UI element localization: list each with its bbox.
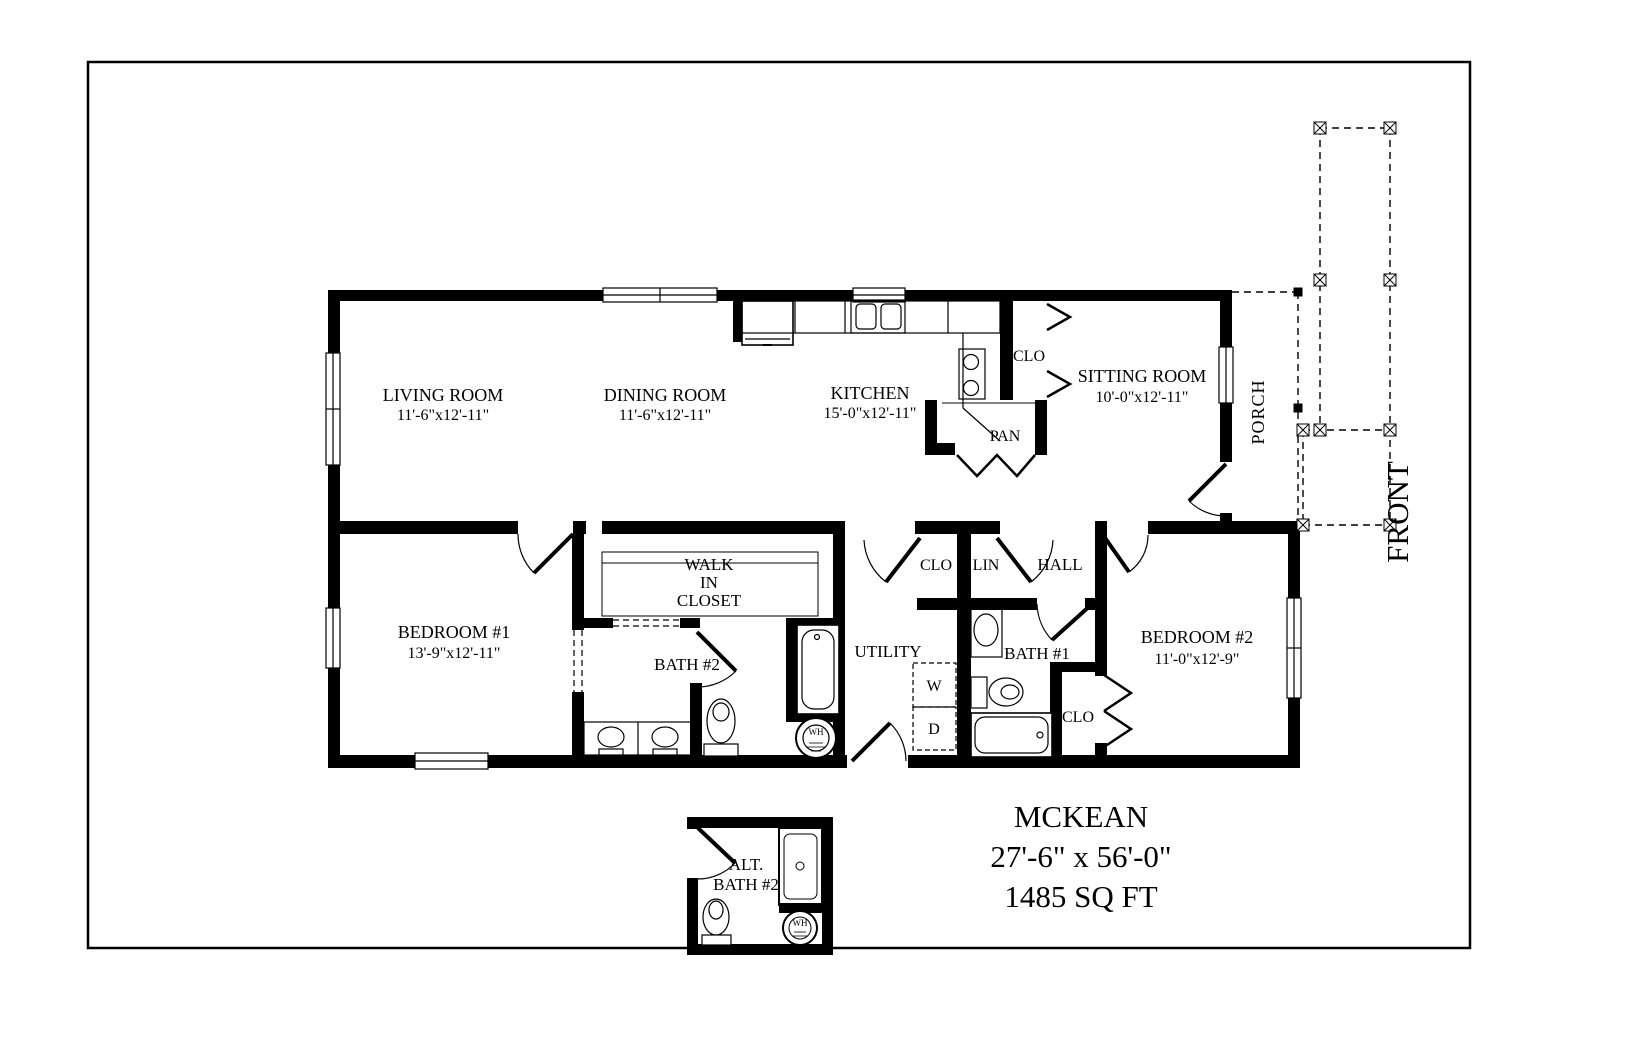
plan-area: 1485 SQ FT [1004,879,1157,914]
kitchen-closet-label: CLO [1013,348,1045,365]
hall-label: HALL [1037,555,1082,574]
bedroom2-label: BEDROOM #2 [1141,627,1254,647]
floor-plan-drawing: LIVING ROOM 11'-6"x12'-11" DINING ROOM 1… [0,0,1632,1056]
bathtub-icon-bath2 [797,625,839,714]
bedroom1-dims: 13'-9"x12'-11" [408,645,501,662]
window-bedroom1-left [326,608,340,668]
opening-bedroom1-door [518,520,573,535]
bath1-label: BATH #1 [1004,644,1070,663]
washer-label: W [926,678,942,695]
window-living-left [326,353,340,465]
plan-dimensions: 27'-6" x 56'-0" [990,839,1171,874]
alt-bath-door-opening [685,829,700,878]
wall-pantry-right [1035,400,1047,455]
living-room-dims: 11'-6"x12'-11" [397,407,489,424]
living-room-label: LIVING ROOM [383,385,504,405]
walkin-closet-line1: WALK [684,555,734,574]
wall-bedroom2-left [1095,521,1107,672]
window-bedroom2-right [1287,598,1301,698]
window-top-dining [603,288,717,302]
linen-closet-label: LIN [973,557,1000,574]
wall-pantry-bottom [925,443,955,455]
bath2-label: BATH #2 [654,655,720,674]
dining-room-dims: 11'-6"x12'-11" [619,407,711,424]
opening-closet-shelf [613,617,680,629]
toilet-icon-alt-bath [702,899,731,945]
utility-label: UTILITY [854,642,921,661]
wall-main-horizontal [328,521,1300,534]
alt-bath-line1: ALT. [729,855,763,874]
bedroom1-label: BEDROOM #1 [398,622,511,642]
dining-room-label: DINING ROOM [604,385,727,405]
porch-post-icon [1297,519,1309,531]
porch-anchor-icon [1294,404,1302,412]
sitting-room-label: SITTING ROOM [1078,366,1207,386]
opening-hall [1000,520,1095,535]
dryer-label: D [928,721,940,738]
water-heater-label: WH [809,727,824,737]
porch-anchor-icon [1294,288,1302,296]
water-heater-alt-label: WH [793,918,808,928]
window-sitting-right [1219,347,1233,403]
porch-post-icon [1314,424,1326,436]
hall-closet-label: CLO [920,557,952,574]
opening-bedroom2-door [1107,520,1148,535]
wall-br2closet-top [1060,662,1095,672]
opening-utility-entry [845,520,915,535]
porch-post-icon [1384,122,1396,134]
sitting-room-dims: 10'-0"x12'-11" [1096,389,1189,406]
porch-post-icon [1314,122,1326,134]
walkin-closet-line2: IN [700,573,718,592]
page-border [88,62,1470,948]
bedroom2-closet-label: CLO [1062,709,1094,726]
alt-bath-line2: BATH #2 [713,875,779,894]
porch-post-icon [1297,424,1309,436]
wall-kitchen-closet [1000,290,1013,400]
front-label: FRONT [1380,461,1415,563]
window-bedroom1-bottom [415,753,488,769]
wall-bath1-top [917,598,1037,610]
porch-post-icon [1314,274,1326,286]
porch-post-icon [1384,424,1396,436]
bathtub-icon-bath1 [971,713,1052,757]
porch-post-icon [1384,274,1396,286]
walkin-closet-line3: CLOSET [677,591,742,610]
bedroom2-dims: 11'-0"x12'-9" [1155,651,1240,668]
water-heater-icon [796,718,836,758]
wall-utility-bath1 [957,533,971,767]
kitchen-label: KITCHEN [831,383,910,403]
pantry-label: PAN [990,428,1021,445]
porch-label: PORCH [1248,379,1268,444]
floor-plan-page: LIVING ROOM 11'-6"x12'-11" DINING ROOM 1… [0,0,1632,1056]
toilet-icon-bath1 [971,677,1023,708]
wall-fridge-stub [733,300,742,342]
kitchen-dims: 15'-0"x12'-11" [824,405,917,422]
opening-closet [586,520,602,535]
title-block: MCKEAN 27'-6" x 56'-0" 1485 SQ FT [990,799,1171,914]
wall-br2closet-stub-top [1095,662,1107,676]
wall-top [328,290,1232,301]
water-heater-alt-icon [783,911,817,945]
plan-title: MCKEAN [1014,799,1148,834]
